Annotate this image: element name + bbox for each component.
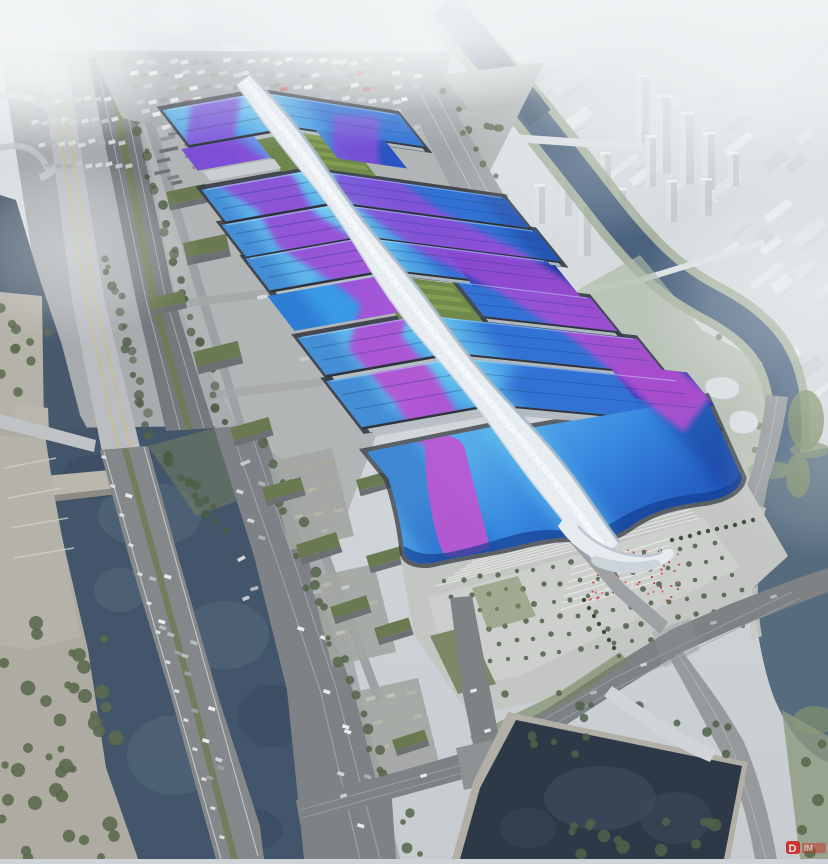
svg-text:D: D — [789, 843, 797, 855]
svg-text:IM: IM — [804, 844, 813, 853]
